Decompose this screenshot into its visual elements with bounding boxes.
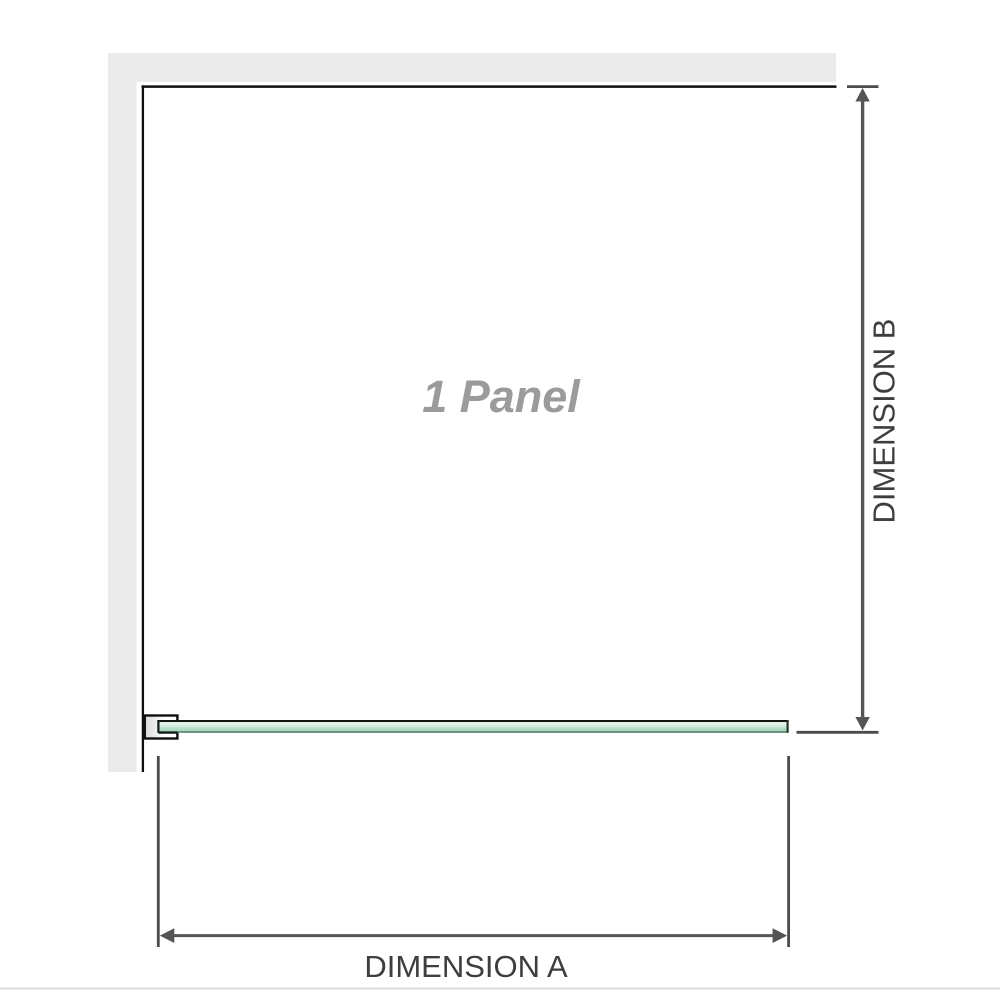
svg-text:1 Panel: 1 Panel xyxy=(422,371,581,422)
svg-text:DIMENSION A: DIMENSION A xyxy=(364,949,568,984)
svg-text:DIMENSION B: DIMENSION B xyxy=(867,319,902,524)
